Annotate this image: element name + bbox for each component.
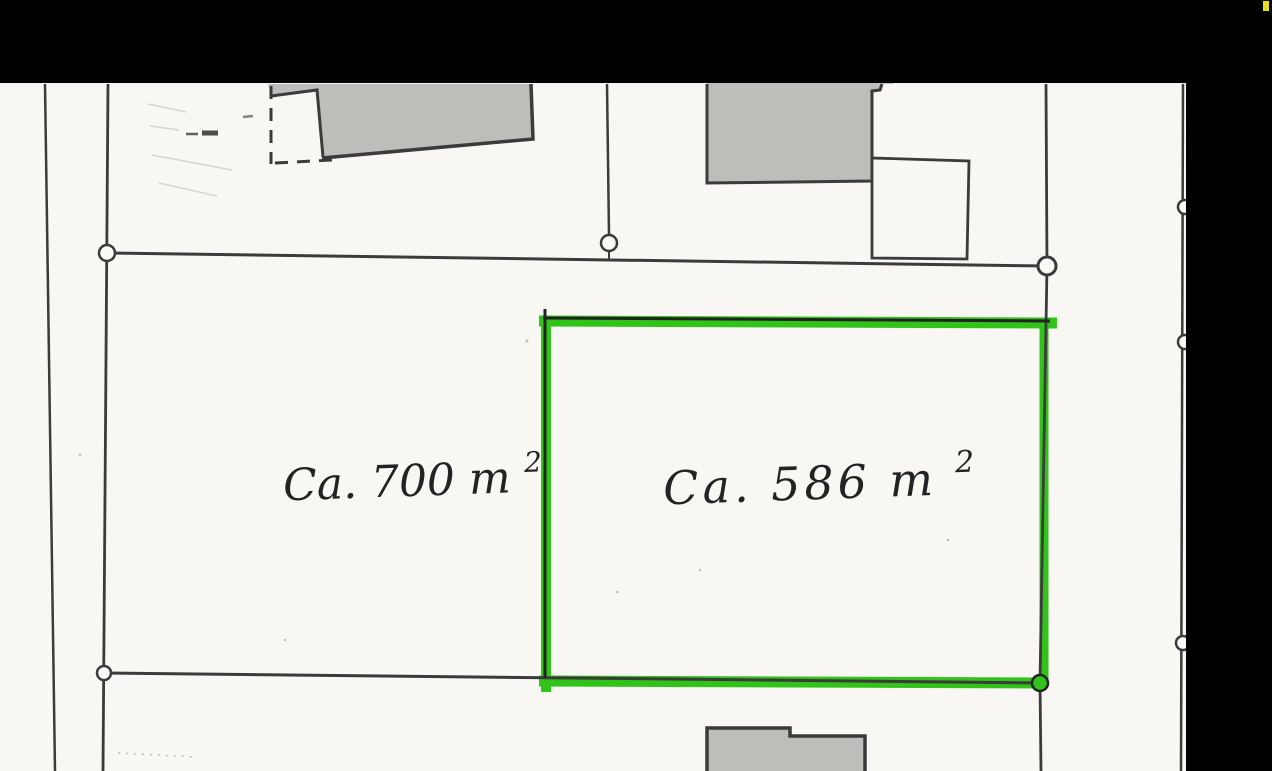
yellow-scan-mark [1263,1,1269,11]
area-superscript-right: 2 [953,444,978,480]
building-top-middle [707,83,893,183]
survey-point [601,235,617,251]
paper-background [0,0,1272,771]
survey-point [99,245,115,261]
building-annex-outline [872,158,969,259]
scanned-plan-page: Ca. 700 m 2 Ca. 586 m 2 [0,0,1272,771]
survey-point-highlighted [1032,675,1048,691]
survey-point [1038,257,1056,275]
area-superscript-left: 2 [522,445,542,479]
pencil-dash [243,116,253,117]
scan-border-top [0,0,1272,83]
site-plan-drawing: Ca. 700 m 2 Ca. 586 m 2 [0,0,1272,771]
area-value-left: Ca. 700 m [282,452,511,511]
area-value-right: Ca. 586 m [662,452,938,516]
scan-border-right [1186,0,1272,771]
survey-point [97,666,111,680]
